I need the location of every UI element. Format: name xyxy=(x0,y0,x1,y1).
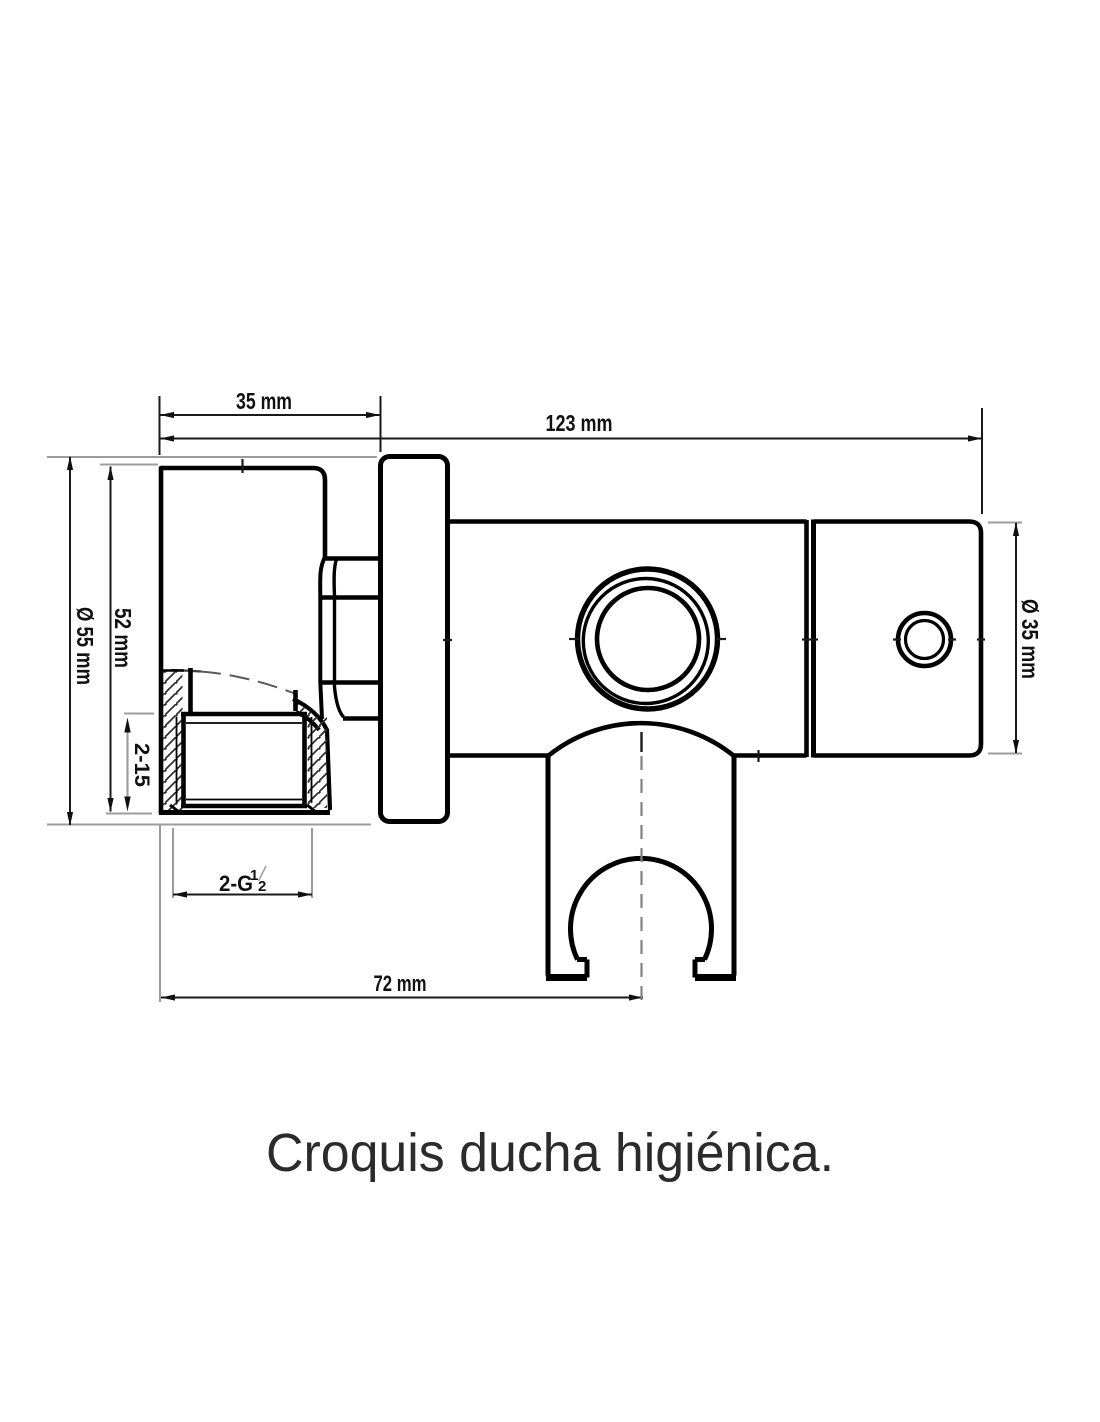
svg-text:2-G: 2-G xyxy=(219,871,253,896)
svg-text:2-15: 2-15 xyxy=(130,743,153,787)
svg-text:72 mm: 72 mm xyxy=(374,971,427,996)
svg-text:2: 2 xyxy=(258,878,266,895)
svg-text:Croquis ducha higiénica.: Croquis ducha higiénica. xyxy=(266,1123,834,1183)
svg-text:Ø 55 mm: Ø 55 mm xyxy=(72,607,98,685)
svg-text:35 mm: 35 mm xyxy=(236,388,292,414)
svg-text:Ø 35 mm: Ø 35 mm xyxy=(1017,599,1043,679)
svg-text:123 mm: 123 mm xyxy=(546,410,613,436)
svg-text:52 mm: 52 mm xyxy=(110,608,136,668)
